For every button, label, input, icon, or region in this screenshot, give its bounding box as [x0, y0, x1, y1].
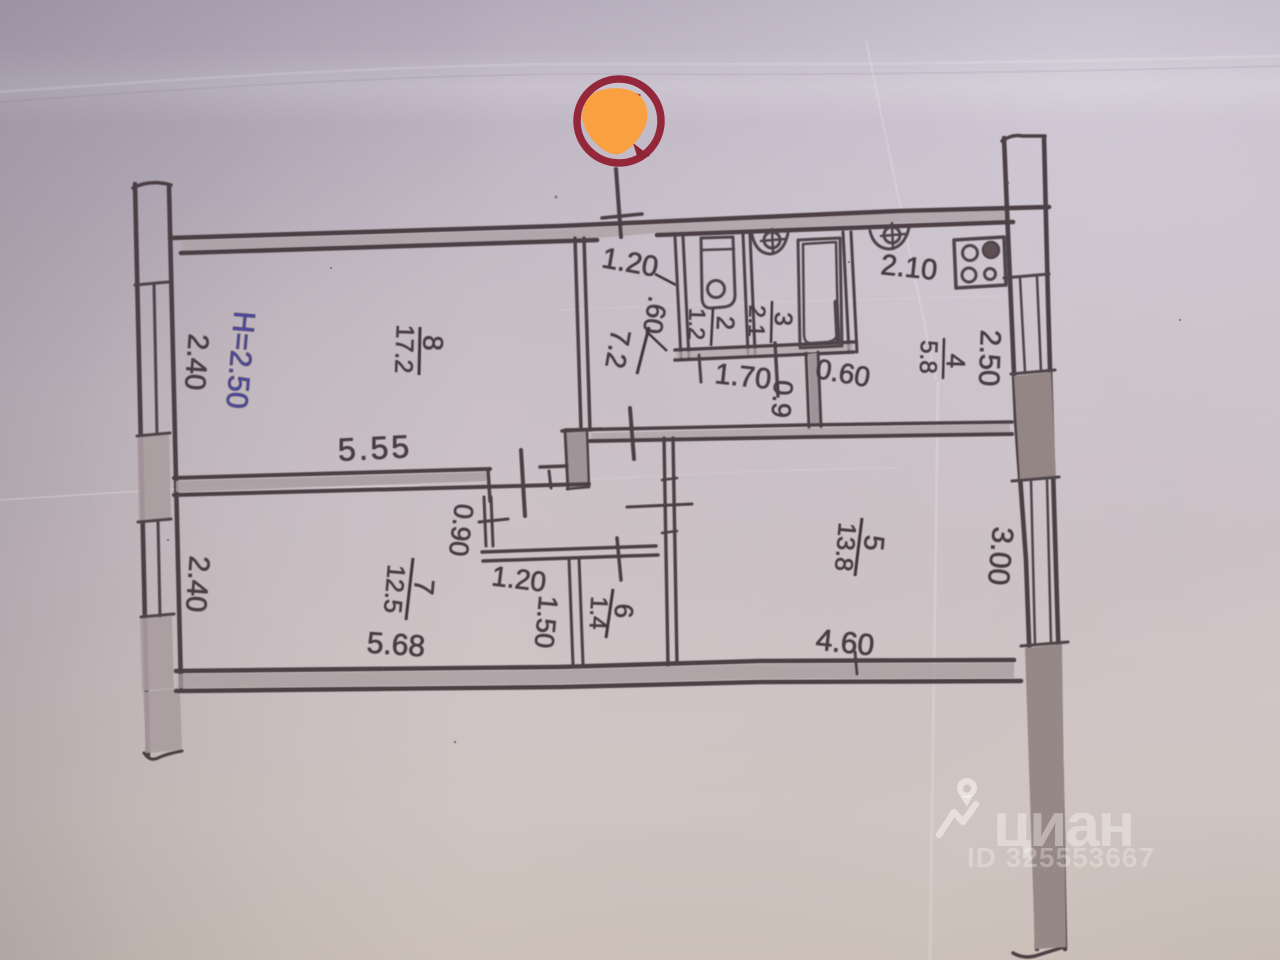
svg-text:6: 6: [609, 603, 640, 619]
svg-text:4: 4: [941, 353, 971, 369]
svg-text:1.70: 1.70: [713, 358, 772, 396]
svg-text:4.60: 4.60: [814, 624, 876, 663]
svg-text:2.1: 2.1: [743, 305, 770, 338]
svg-text:2.40: 2.40: [178, 333, 214, 392]
svg-text:13.8: 13.8: [829, 522, 861, 573]
svg-text:5.68: 5.68: [366, 627, 427, 664]
svg-text:0.9: 0.9: [765, 379, 798, 419]
svg-text:5: 5: [858, 534, 890, 552]
svg-text:2.50: 2.50: [972, 329, 1006, 387]
svg-text:5.55: 5.55: [337, 428, 413, 468]
svg-text:17.2: 17.2: [389, 324, 419, 374]
svg-text:2.10: 2.10: [879, 249, 938, 287]
svg-text:3: 3: [769, 312, 797, 327]
svg-text:12.5: 12.5: [378, 564, 410, 615]
svg-text:7: 7: [408, 578, 440, 596]
svg-text:3.00: 3.00: [981, 525, 1019, 586]
svg-text:1.50: 1.50: [529, 595, 563, 650]
svg-text:.60: .60: [637, 294, 673, 336]
svg-text:2: 2: [711, 316, 739, 331]
svg-text:ID 325553667: ID 325553667: [967, 842, 1155, 873]
svg-text:1.2: 1.2: [683, 308, 710, 341]
svg-text:0.90: 0.90: [443, 502, 479, 558]
svg-text:1.4: 1.4: [584, 596, 613, 631]
svg-text:2.40: 2.40: [179, 555, 215, 614]
svg-text:8: 8: [417, 335, 449, 352]
svg-text:1.20: 1.20: [490, 560, 548, 597]
svg-text:5.8: 5.8: [914, 340, 942, 374]
